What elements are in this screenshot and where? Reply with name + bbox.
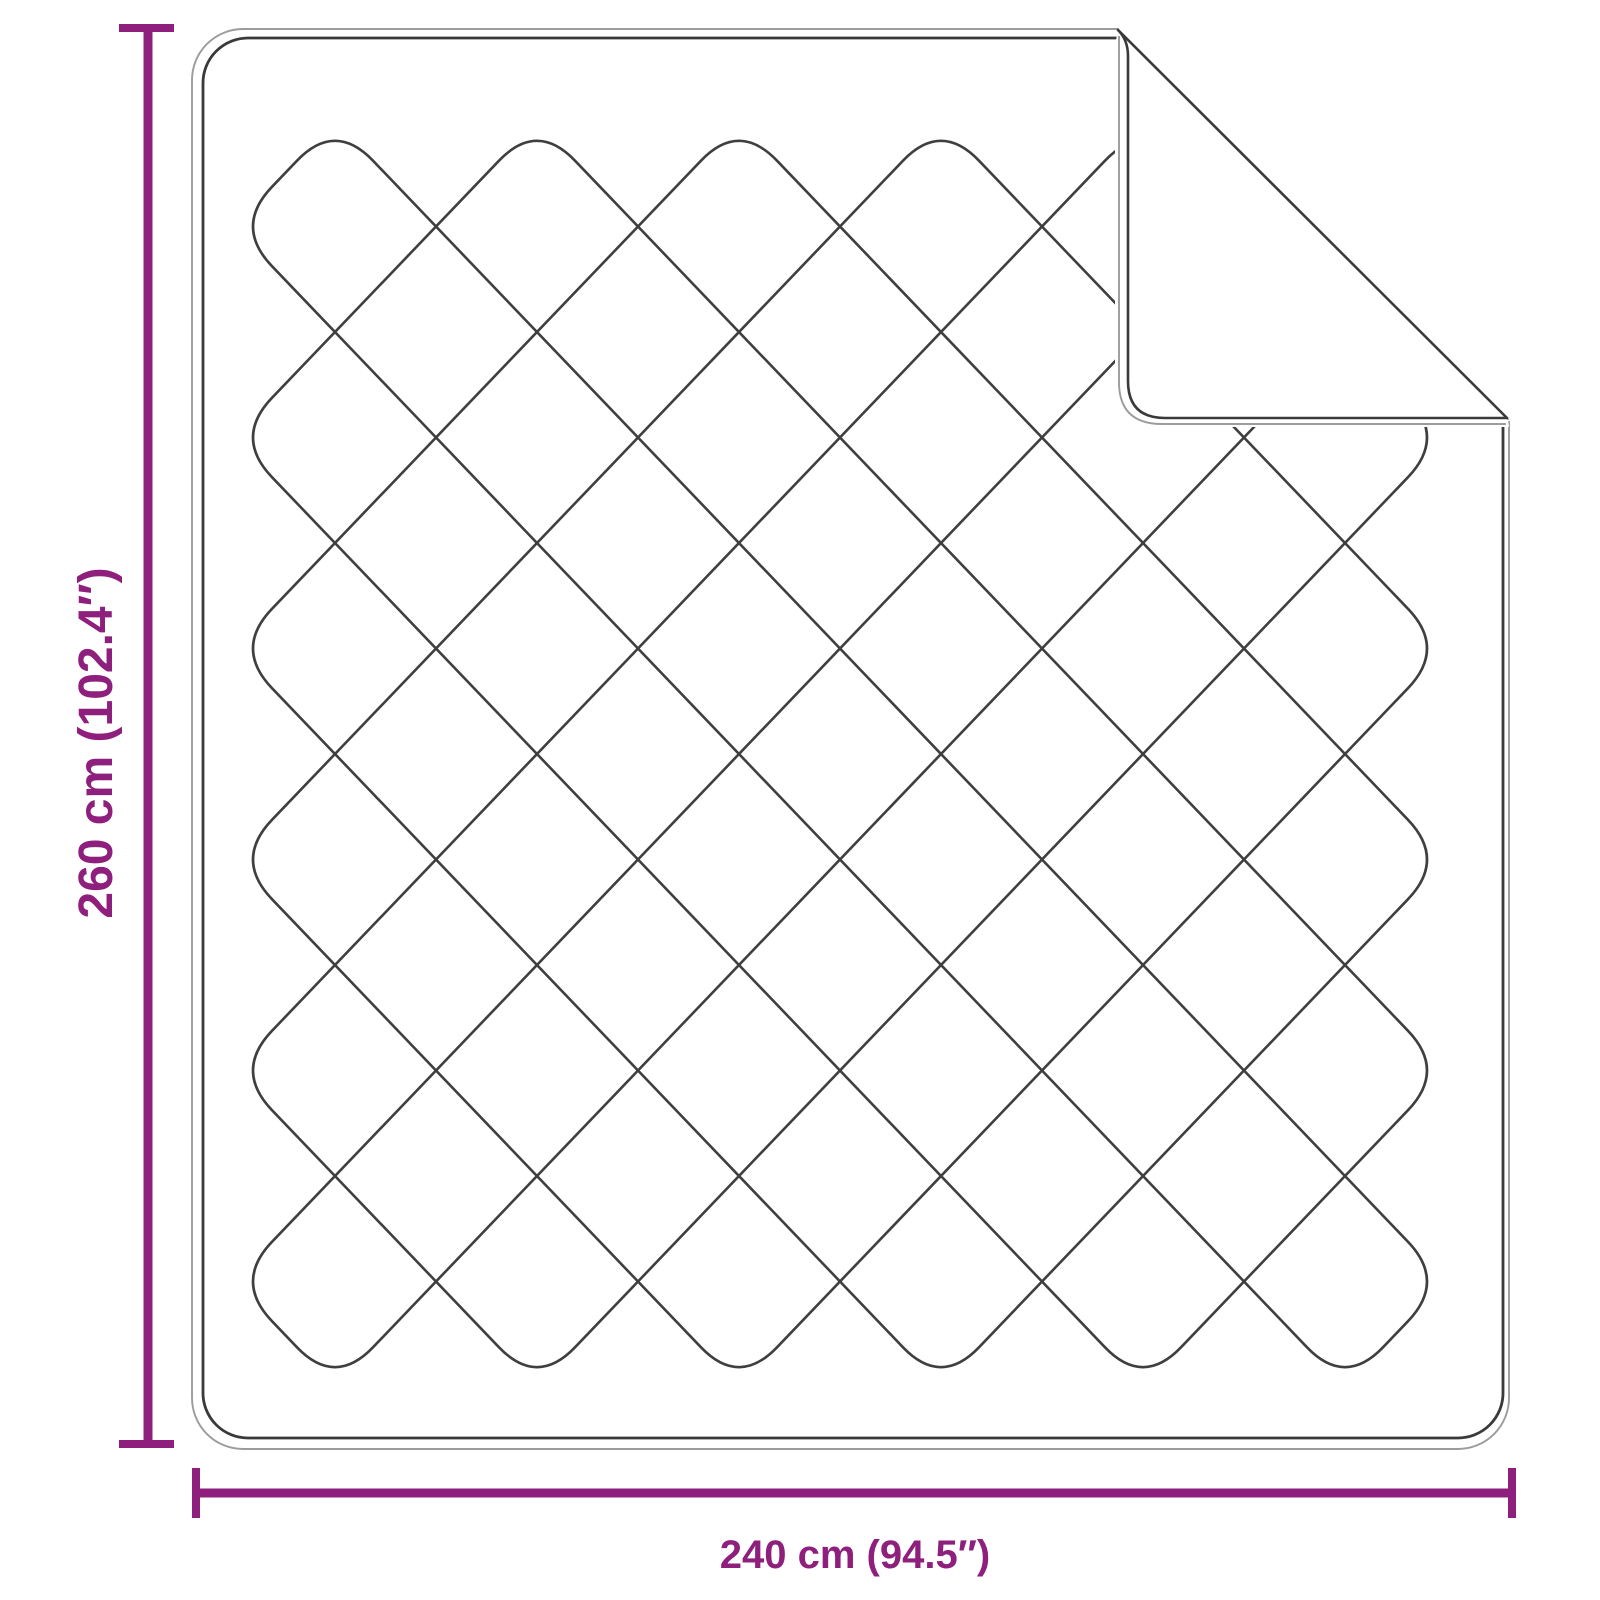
dimension-width: 240 cm (94.5″)	[196, 1468, 1512, 1577]
width-label: 240 cm (94.5″)	[720, 1533, 990, 1577]
dimension-height: 260 cm (102.4″)	[70, 28, 174, 1444]
height-label: 260 cm (102.4″)	[70, 567, 123, 918]
folded-corner-outline	[1118, 30, 1507, 418]
product-dimension-diagram: 260 cm (102.4″) 240 cm (94.5″)	[0, 0, 1600, 1600]
diagram-canvas: 260 cm (102.4″) 240 cm (94.5″)	[0, 0, 1600, 1600]
